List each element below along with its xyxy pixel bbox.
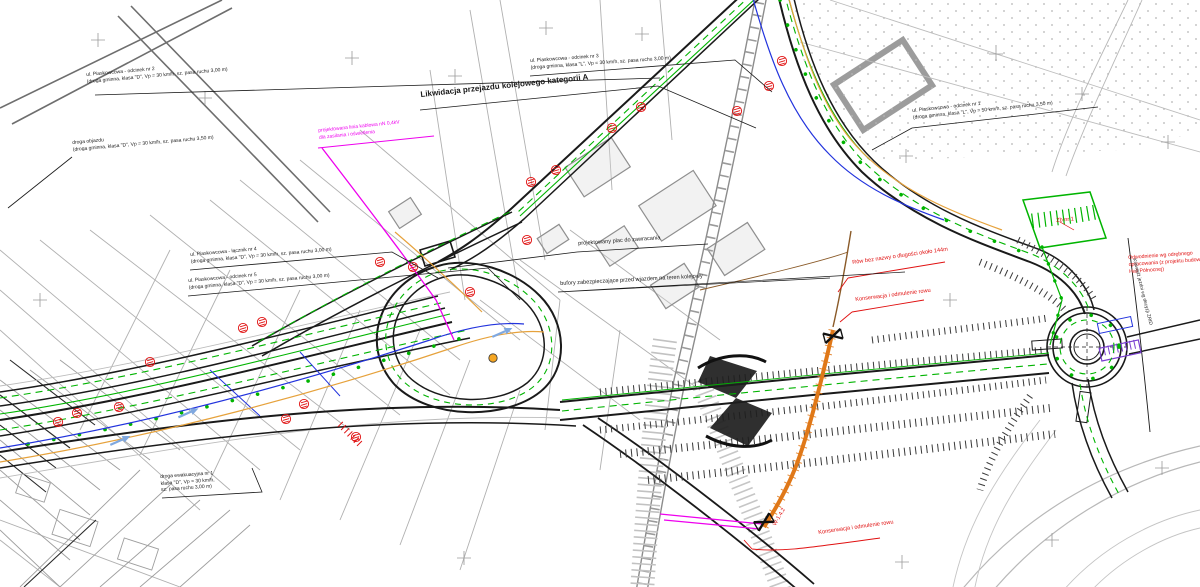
label-evacuation-road: droga ewakuacyjna nr 1 klasa "D", Vp = 3… [160, 470, 215, 493]
site-plan-canvas [0, 0, 1200, 587]
point-of-interest-dot [489, 354, 497, 362]
basemap-cadastral [0, 0, 1200, 587]
roundabout [1032, 307, 1141, 423]
relocated-ditch [754, 329, 843, 531]
site-plan: Likwidacja przejazdu kolejowego kategori… [0, 0, 1200, 587]
label-leaders [8, 60, 1098, 498]
label-basin-zb1: Zb nr 1 [1056, 216, 1074, 225]
